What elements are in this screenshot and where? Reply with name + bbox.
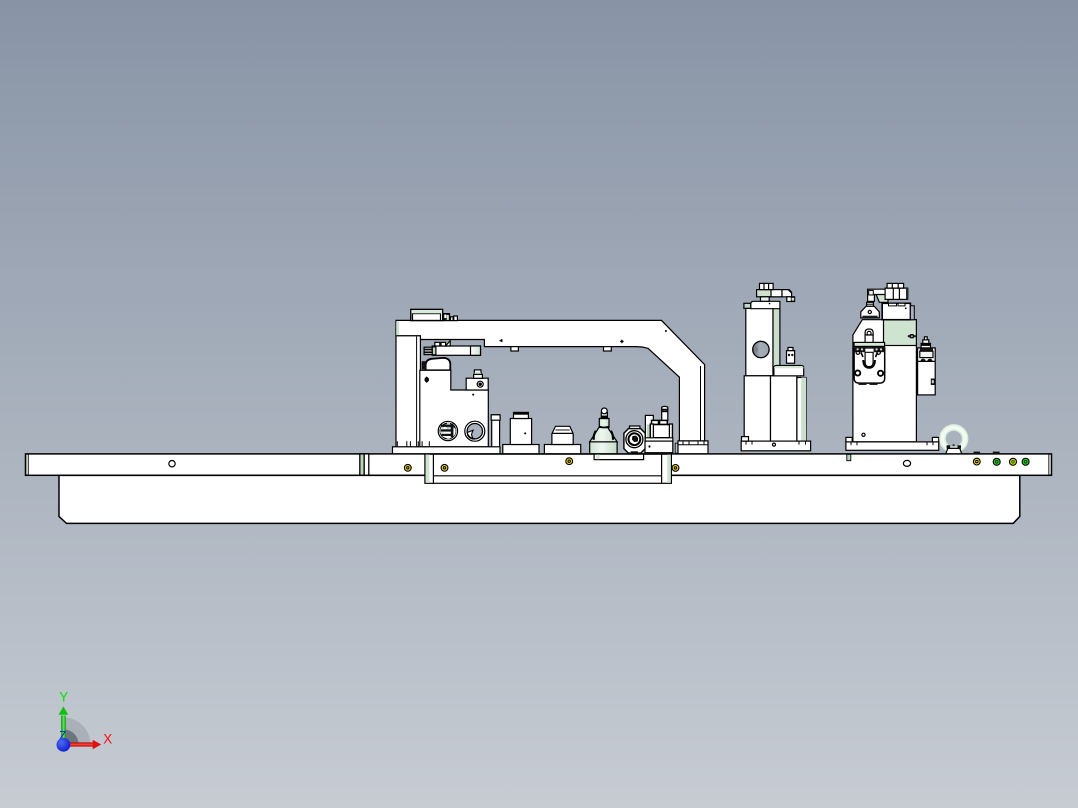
svg-text:X: X bbox=[103, 732, 112, 747]
svg-text:Y: Y bbox=[59, 690, 68, 705]
